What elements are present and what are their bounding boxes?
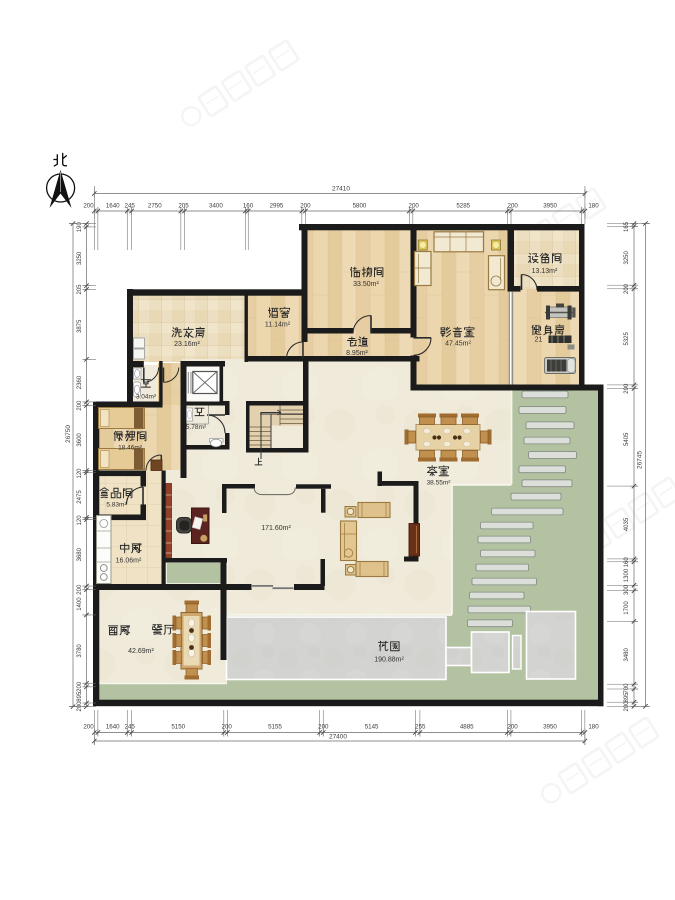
svg-text:16.06m²: 16.06m² — [116, 558, 142, 565]
svg-text:27410: 27410 — [332, 186, 350, 193]
svg-text:245: 245 — [125, 203, 136, 210]
svg-text:5325: 5325 — [624, 331, 630, 345]
svg-text:42.69m²: 42.69m² — [128, 648, 154, 655]
svg-text:190.88m²: 190.88m² — [374, 657, 404, 664]
svg-text:200: 200 — [83, 724, 94, 731]
svg-text:160: 160 — [243, 203, 254, 210]
svg-text:2995: 2995 — [270, 203, 284, 210]
svg-text:895: 895 — [77, 691, 83, 702]
svg-text:3780: 3780 — [77, 644, 83, 658]
svg-text:200: 200 — [83, 203, 94, 210]
svg-text:26750: 26750 — [65, 425, 72, 443]
svg-text:1400: 1400 — [77, 597, 83, 611]
svg-text:5285: 5285 — [456, 203, 470, 210]
svg-text:200: 200 — [507, 724, 518, 731]
svg-text:5145: 5145 — [365, 724, 379, 731]
svg-text:3950: 3950 — [543, 203, 557, 210]
svg-text:5155: 5155 — [268, 724, 282, 731]
svg-text:205: 205 — [178, 203, 189, 210]
svg-text:2475: 2475 — [77, 490, 83, 504]
svg-text:1640: 1640 — [106, 724, 120, 731]
svg-text:120: 120 — [77, 515, 83, 526]
svg-text:205: 205 — [77, 284, 83, 295]
svg-text:5.83m²: 5.83m² — [106, 502, 127, 509]
svg-text:200: 200 — [624, 701, 630, 712]
svg-text:23.16m²: 23.16m² — [174, 341, 200, 348]
svg-text:190: 190 — [77, 222, 83, 233]
svg-text:3480: 3480 — [624, 647, 630, 661]
svg-text:245: 245 — [125, 724, 136, 731]
svg-text:11.14m²: 11.14m² — [265, 322, 291, 329]
svg-text:200: 200 — [508, 203, 519, 210]
svg-text:33.50m²: 33.50m² — [353, 281, 379, 288]
svg-text:255: 255 — [415, 724, 426, 731]
svg-text:3400: 3400 — [209, 203, 223, 210]
svg-text:200: 200 — [77, 400, 83, 411]
svg-text:200: 200 — [624, 283, 630, 294]
svg-text:200: 200 — [300, 203, 311, 210]
svg-text:180: 180 — [588, 203, 599, 210]
svg-text:1700: 1700 — [624, 601, 630, 615]
svg-text:47.45m²: 47.45m² — [445, 341, 471, 348]
svg-text:2360: 2360 — [77, 375, 83, 389]
svg-text:5150: 5150 — [171, 724, 185, 731]
svg-text:165: 165 — [624, 221, 630, 232]
svg-text:300: 300 — [624, 584, 630, 595]
svg-text:18.46m²: 18.46m² — [118, 445, 143, 452]
svg-text:3.04m²: 3.04m² — [136, 394, 157, 401]
svg-text:180: 180 — [588, 724, 599, 731]
svg-text:120: 120 — [77, 468, 83, 479]
svg-text:8.95m²: 8.95m² — [346, 350, 368, 357]
svg-text:200: 200 — [222, 724, 233, 731]
svg-text:26745: 26745 — [637, 451, 644, 469]
svg-text:4035: 4035 — [624, 517, 630, 531]
svg-text:200: 200 — [77, 681, 83, 692]
svg-text:700: 700 — [624, 683, 630, 694]
svg-text:200: 200 — [624, 383, 630, 394]
svg-text:200: 200 — [318, 724, 329, 731]
svg-text:5405: 5405 — [624, 432, 630, 446]
svg-text:38.55m²: 38.55m² — [427, 480, 452, 487]
svg-text:200: 200 — [77, 701, 83, 712]
svg-text:3600: 3600 — [77, 433, 83, 447]
svg-text:13.13m²: 13.13m² — [532, 268, 558, 275]
svg-text:5.78m²: 5.78m² — [186, 424, 207, 431]
svg-text:3250: 3250 — [624, 250, 630, 264]
svg-text:160: 160 — [624, 557, 630, 568]
svg-text:3875: 3875 — [77, 319, 83, 333]
svg-text:2750: 2750 — [148, 203, 162, 210]
svg-text:4885: 4885 — [460, 724, 474, 731]
svg-text:895: 895 — [624, 692, 630, 703]
svg-text:3680: 3680 — [77, 547, 83, 561]
svg-text:200: 200 — [77, 584, 83, 595]
svg-text:27400: 27400 — [329, 734, 347, 741]
svg-text:5800: 5800 — [353, 203, 367, 210]
svg-text:3250: 3250 — [77, 251, 83, 265]
svg-text:200: 200 — [409, 203, 420, 210]
svg-text:1300: 1300 — [624, 568, 630, 582]
svg-text:171.60m²: 171.60m² — [261, 525, 291, 532]
svg-text:3950: 3950 — [543, 724, 557, 731]
svg-text:1640: 1640 — [106, 203, 120, 210]
svg-text:21: 21 — [535, 337, 543, 344]
